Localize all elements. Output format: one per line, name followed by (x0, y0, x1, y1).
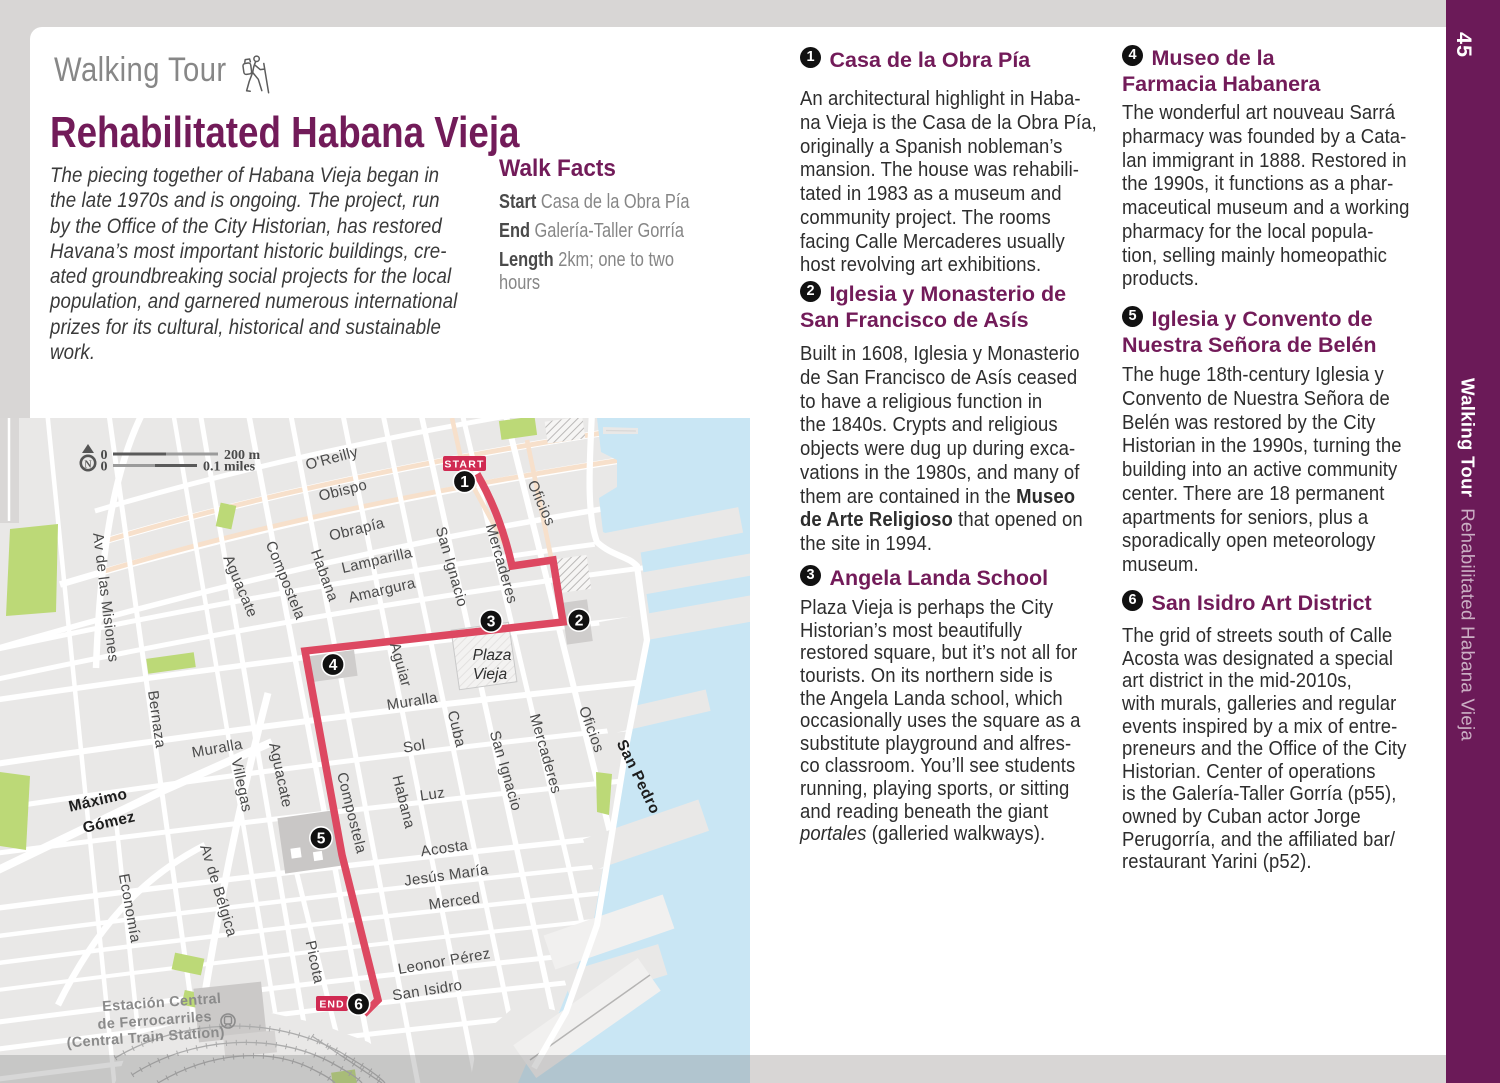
svg-text:Sol: Sol (402, 736, 427, 756)
svg-text:1: 1 (460, 474, 469, 491)
svg-text:N: N (84, 460, 92, 471)
svg-text:4: 4 (329, 657, 338, 674)
svg-text:Plaza: Plaza (473, 647, 512, 664)
svg-text:0: 0 (101, 460, 108, 475)
svg-text:START: START (444, 459, 484, 471)
svg-text:3: 3 (487, 614, 496, 631)
svg-text:6: 6 (354, 997, 363, 1014)
svg-text:2: 2 (575, 613, 584, 630)
svg-text:0.1 miles: 0.1 miles (203, 460, 256, 475)
svg-text:END: END (319, 999, 344, 1011)
svg-text:5: 5 (317, 831, 326, 848)
svg-text:Luz: Luz (419, 784, 446, 804)
svg-text:Vieja: Vieja (473, 666, 508, 683)
